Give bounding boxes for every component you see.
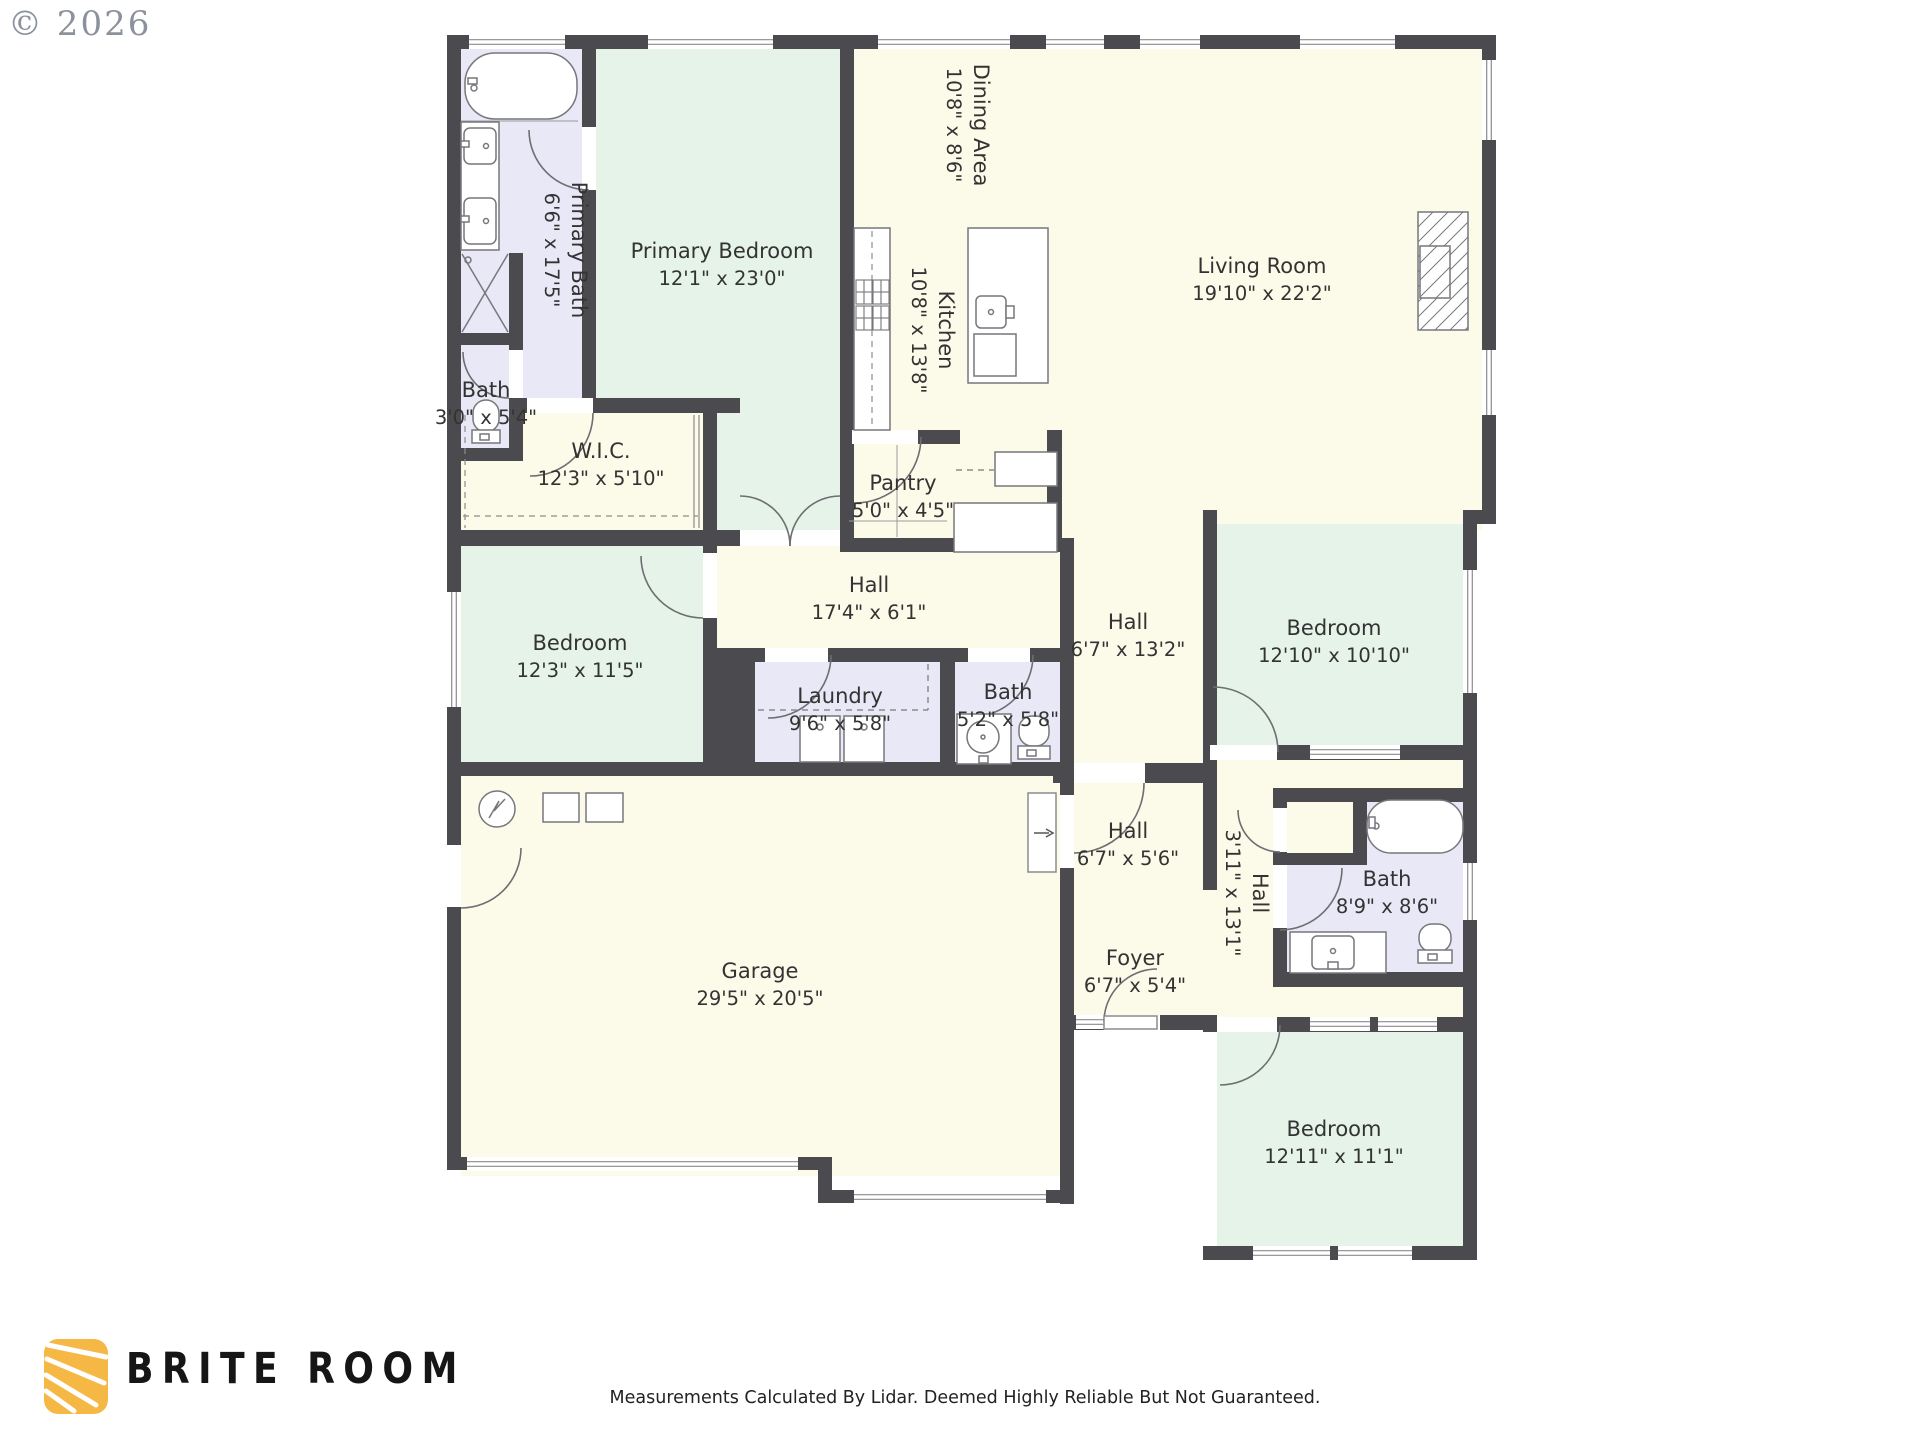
window <box>1378 1017 1437 1031</box>
window <box>1338 1246 1412 1260</box>
door-opening <box>582 127 596 190</box>
window <box>467 1157 798 1171</box>
copyright-watermark: © 2026 <box>8 4 151 44</box>
entry-door-icon <box>1028 793 1056 872</box>
window <box>1463 863 1477 920</box>
brand-name: BRITE ROOM <box>126 1344 466 1394</box>
fireplace-icon <box>1418 212 1468 330</box>
wall <box>447 530 740 546</box>
window <box>1482 350 1496 415</box>
wall <box>447 1157 467 1170</box>
front-door-slab <box>1104 1016 1157 1029</box>
wall <box>703 413 717 530</box>
bathtub-icon <box>1367 800 1463 853</box>
wall <box>840 35 854 546</box>
door-opening <box>1273 865 1287 928</box>
sun-rays-icon <box>44 1339 108 1414</box>
water-heater-icon <box>479 791 623 827</box>
closet <box>1287 802 1353 853</box>
window <box>1310 745 1400 759</box>
door-opening <box>1273 808 1287 852</box>
wall <box>1463 1017 1477 1260</box>
window <box>1046 35 1104 49</box>
disclaimer-text: Measurements Calculated By Lidar. Deemed… <box>610 1388 1321 1408</box>
wall <box>798 1157 832 1170</box>
window <box>1463 570 1477 693</box>
room-primary-bedroom <box>596 49 840 398</box>
wall <box>1273 788 1477 802</box>
door-opening <box>1217 1017 1277 1032</box>
toilet-icon <box>1418 924 1452 963</box>
wall <box>832 1190 854 1203</box>
door-opening <box>447 845 461 907</box>
wall <box>1273 972 1477 987</box>
kitchen-counter-icon <box>854 228 890 430</box>
wall <box>1203 760 1217 890</box>
window <box>469 35 565 49</box>
door-opening <box>509 350 523 398</box>
door-opening <box>765 648 828 662</box>
wall <box>447 448 523 461</box>
wall <box>717 648 755 776</box>
wall <box>1046 1190 1074 1203</box>
floor-plan: Primary Bath6'6" x 17'5"Primary Bedroom1… <box>0 0 1920 1440</box>
wall <box>818 1170 832 1203</box>
window <box>854 1190 1046 1204</box>
vanity-sink-icon <box>461 122 499 250</box>
wall <box>1203 510 1217 760</box>
window <box>1253 1246 1330 1260</box>
door-opening <box>1074 763 1145 783</box>
window <box>878 35 1010 49</box>
window <box>447 592 461 707</box>
window <box>1482 60 1496 140</box>
kitchen-island-icon <box>968 228 1048 383</box>
window <box>1076 1015 1104 1029</box>
wall <box>1273 853 1367 865</box>
door-opening <box>1210 745 1277 760</box>
wall <box>940 662 955 776</box>
window <box>1300 35 1395 49</box>
window <box>1310 1017 1370 1031</box>
vanity-sink-icon <box>1290 932 1386 973</box>
door-opening <box>968 648 1030 662</box>
door-opening <box>703 553 717 618</box>
brand-logo <box>44 1339 108 1414</box>
wall <box>1353 802 1367 865</box>
bathtub-icon <box>461 53 578 121</box>
window <box>1140 35 1200 49</box>
window <box>648 35 773 49</box>
door-opening <box>852 430 918 444</box>
floorplan-page: { "copyright": "© 2026", "footer": { "br… <box>0 0 1920 1440</box>
door-opening <box>1060 795 1074 868</box>
